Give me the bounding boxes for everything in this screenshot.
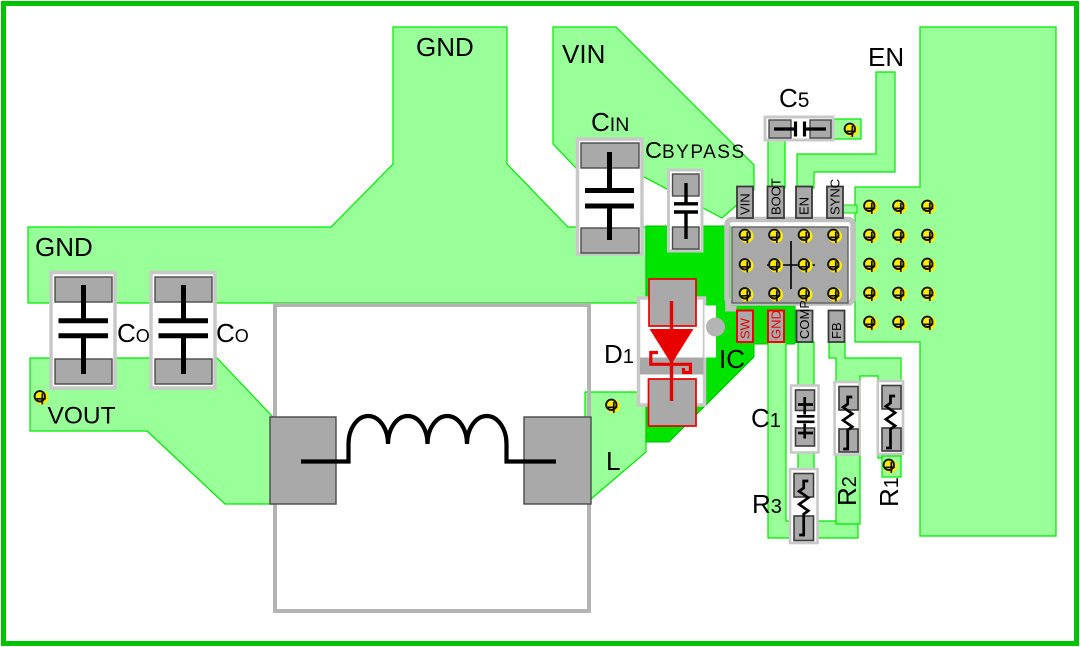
svg-text:GND: GND <box>35 232 93 262</box>
svg-text:FB: FB <box>829 322 844 339</box>
svg-text:GND: GND <box>769 310 784 339</box>
svg-text:COMP: COMP <box>797 300 812 339</box>
svg-text:SYNC: SYNC <box>828 179 843 215</box>
svg-text:SW: SW <box>738 317 753 339</box>
svg-text:VIN: VIN <box>562 39 605 69</box>
svg-text:BOOT: BOOT <box>769 178 784 215</box>
svg-text:EN: EN <box>868 42 904 72</box>
svg-text:IC: IC <box>719 344 745 374</box>
svg-text:VIN: VIN <box>738 193 753 215</box>
svg-text:EN: EN <box>797 197 812 215</box>
svg-text:L: L <box>606 446 620 476</box>
svg-text:VOUT: VOUT <box>48 402 116 429</box>
svg-text:GND: GND <box>416 32 474 62</box>
